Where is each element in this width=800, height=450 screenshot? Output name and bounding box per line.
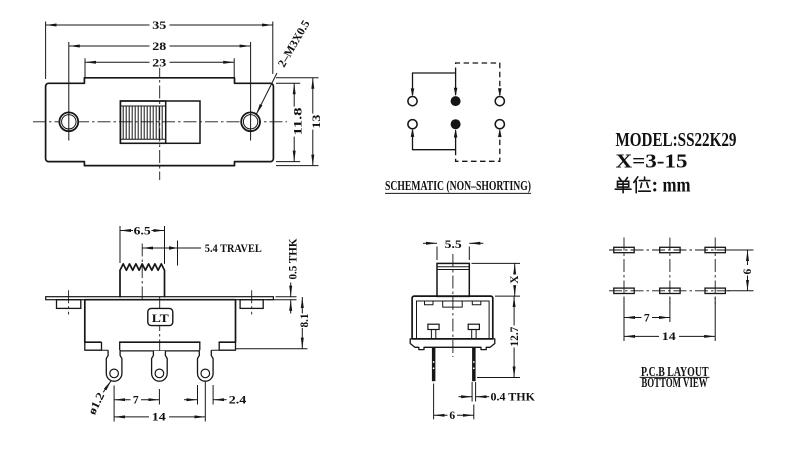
- svg-text:14: 14: [152, 412, 166, 424]
- svg-text:X=3-15: X=3-15: [616, 151, 688, 173]
- svg-text:23: 23: [152, 57, 166, 69]
- svg-text:MODEL:SS22K29: MODEL:SS22K29: [616, 129, 737, 151]
- svg-text:6.5: 6.5: [134, 225, 151, 237]
- svg-text::: :: [652, 175, 659, 197]
- svg-text:X: X: [509, 275, 521, 284]
- svg-text:mm: mm: [663, 175, 691, 197]
- svg-text:0.4 THK: 0.4 THK: [491, 392, 536, 404]
- svg-text:0.5 THK: 0.5 THK: [287, 238, 299, 279]
- svg-text:12.7: 12.7: [509, 326, 521, 346]
- svg-text:6: 6: [449, 410, 455, 422]
- svg-text:BOTTOM VIEW: BOTTOM VIEW: [641, 375, 708, 390]
- svg-text:5.4 TRAVEL: 5.4 TRAVEL: [205, 243, 262, 255]
- svg-text:13: 13: [311, 114, 323, 128]
- svg-text:SCHEMATIC (NON–SHORTING): SCHEMATIC (NON–SHORTING): [385, 178, 531, 193]
- svg-text:8.1: 8.1: [299, 313, 311, 327]
- svg-text:6: 6: [742, 269, 754, 275]
- svg-text:11.8: 11.8: [293, 107, 305, 135]
- svg-text:7: 7: [133, 394, 139, 406]
- svg-text:28: 28: [152, 41, 166, 53]
- svg-text:7: 7: [644, 312, 650, 324]
- svg-text:14: 14: [662, 331, 676, 343]
- svg-text:5.5: 5.5: [445, 239, 462, 251]
- svg-text:2.4: 2.4: [229, 394, 247, 406]
- svg-text:LT: LT: [152, 313, 169, 325]
- svg-text:35: 35: [152, 20, 166, 32]
